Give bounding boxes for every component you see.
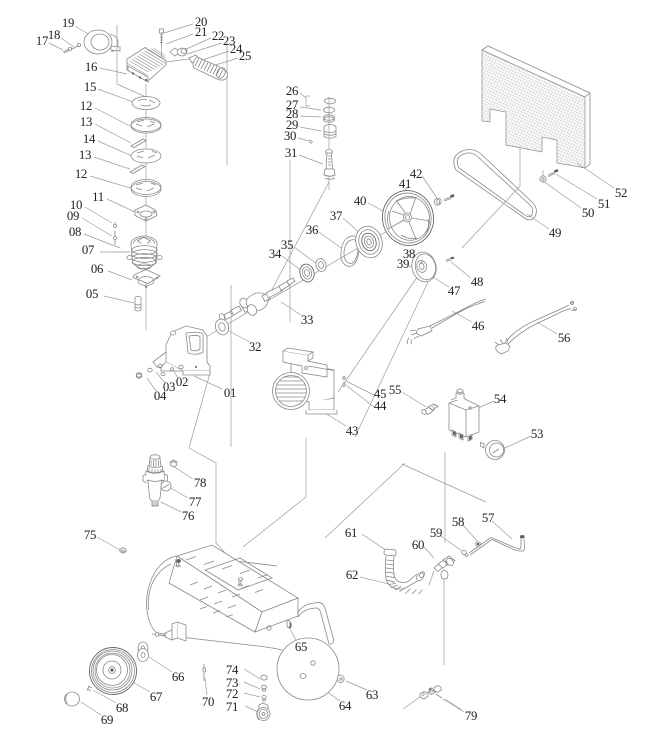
svg-text:06: 06 — [91, 262, 104, 276]
svg-text:25: 25 — [239, 49, 251, 63]
svg-text:18: 18 — [48, 28, 60, 42]
svg-text:01: 01 — [224, 386, 236, 400]
svg-text:58: 58 — [452, 515, 464, 529]
svg-text:12: 12 — [75, 167, 87, 181]
svg-text:51: 51 — [598, 197, 610, 211]
svg-text:48: 48 — [471, 275, 483, 289]
svg-text:65: 65 — [295, 640, 307, 654]
svg-text:19: 19 — [62, 16, 74, 30]
svg-text:39: 39 — [397, 257, 409, 271]
svg-text:54: 54 — [494, 392, 507, 406]
svg-text:46: 46 — [472, 319, 485, 333]
svg-text:79: 79 — [465, 709, 477, 723]
svg-text:75: 75 — [84, 528, 96, 542]
svg-text:77: 77 — [189, 495, 202, 509]
svg-text:07: 07 — [82, 243, 95, 257]
svg-text:42: 42 — [410, 167, 422, 181]
svg-text:02: 02 — [176, 375, 188, 389]
svg-text:13: 13 — [80, 115, 92, 129]
svg-text:05: 05 — [86, 287, 98, 301]
svg-text:08: 08 — [69, 225, 81, 239]
svg-text:55: 55 — [389, 383, 401, 397]
svg-text:68: 68 — [116, 701, 128, 715]
svg-text:52: 52 — [615, 186, 627, 200]
svg-text:45: 45 — [374, 387, 386, 401]
svg-text:63: 63 — [366, 688, 378, 702]
svg-text:36: 36 — [306, 223, 319, 237]
svg-text:49: 49 — [549, 226, 561, 240]
svg-text:47: 47 — [448, 284, 461, 298]
svg-text:50: 50 — [582, 206, 594, 220]
svg-text:21: 21 — [195, 25, 207, 39]
svg-text:67: 67 — [150, 690, 163, 704]
svg-text:53: 53 — [531, 427, 543, 441]
svg-text:35: 35 — [281, 238, 293, 252]
svg-text:76: 76 — [182, 509, 195, 523]
svg-text:32: 32 — [249, 340, 261, 354]
svg-text:14: 14 — [83, 132, 96, 146]
svg-text:56: 56 — [558, 331, 571, 345]
svg-text:43: 43 — [346, 424, 358, 438]
svg-text:69: 69 — [101, 713, 113, 727]
svg-text:61: 61 — [345, 526, 357, 540]
svg-text:66: 66 — [172, 670, 185, 684]
svg-text:13: 13 — [79, 148, 91, 162]
svg-text:71: 71 — [226, 700, 238, 714]
svg-text:60: 60 — [412, 538, 424, 552]
svg-text:31: 31 — [285, 146, 297, 160]
svg-text:30: 30 — [284, 129, 296, 143]
svg-text:40: 40 — [354, 194, 366, 208]
svg-text:37: 37 — [330, 209, 343, 223]
svg-text:62: 62 — [346, 568, 358, 582]
svg-text:74: 74 — [226, 663, 239, 677]
svg-text:78: 78 — [194, 476, 206, 490]
svg-text:57: 57 — [482, 511, 495, 525]
svg-text:70: 70 — [202, 695, 214, 709]
svg-text:11: 11 — [92, 190, 104, 204]
svg-text:26: 26 — [286, 84, 299, 98]
svg-text:33: 33 — [301, 313, 313, 327]
svg-text:10: 10 — [70, 198, 82, 212]
svg-text:12: 12 — [80, 99, 92, 113]
svg-text:04: 04 — [154, 389, 167, 403]
svg-text:44: 44 — [374, 399, 387, 413]
svg-text:73: 73 — [226, 676, 238, 690]
svg-text:15: 15 — [84, 80, 96, 94]
svg-text:64: 64 — [339, 699, 352, 713]
svg-text:16: 16 — [85, 60, 98, 74]
svg-text:59: 59 — [430, 526, 442, 540]
